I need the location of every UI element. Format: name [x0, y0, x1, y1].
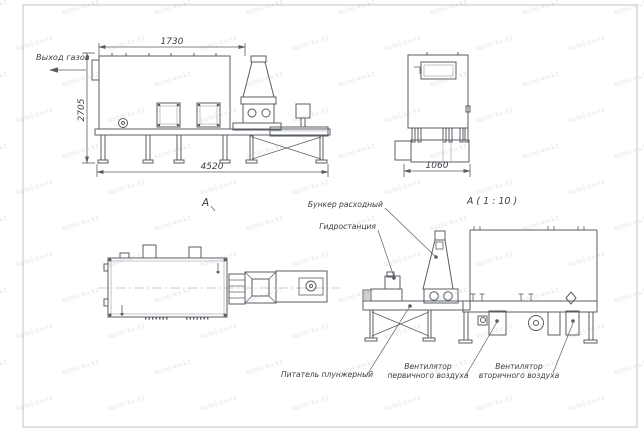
gas-flow-arrow-icon — [49, 67, 58, 72]
fan-primary-label-1: Вентилятор — [404, 362, 452, 371]
feeder-assembly — [363, 272, 470, 341]
fan-secondary-unit — [529, 311, 580, 335]
fan-primary-unit — [478, 311, 506, 335]
callout-fan-secondary: Вентилятор вторичного воздуха — [479, 323, 573, 380]
dim-2705: 2705 — [77, 98, 87, 121]
chamber-section — [459, 226, 597, 343]
callout-hydrostation: Гидростанция — [319, 222, 395, 279]
view-end-elevation: 1060 — [395, 52, 470, 177]
bunker-tower-side — [233, 56, 281, 130]
conveyor-and-support — [246, 104, 328, 163]
bunker-tower-detail — [423, 231, 458, 303]
boiler-base-frame — [95, 129, 330, 163]
sheet-frame — [23, 5, 637, 427]
view-side-elevation: Выход газов 1730 2705 4520 — [36, 37, 330, 211]
anchor-mark-icon — [566, 292, 576, 304]
boiler-body-side — [92, 53, 230, 129]
gas-outlet-label: Выход газов — [36, 52, 90, 62]
section-marker-a: А — [201, 197, 215, 211]
dimension-top-width: 1730 — [99, 37, 245, 56]
drawing-sheet: Выход газов 1730 2705 4520 — [0, 0, 644, 430]
fan-primary-label-2: первичного воздуха — [387, 371, 468, 380]
dim-1730: 1730 — [161, 37, 184, 47]
hydro-label: Гидростанция — [319, 222, 376, 231]
section-a-label: А — [201, 197, 209, 209]
fan-secondary-label-1: Вентилятор — [495, 362, 543, 371]
technical-drawing: Выход газов 1730 2705 4520 — [0, 0, 644, 430]
dimension-overall-length: 4520 — [97, 162, 328, 177]
bunker-label: Бункер расходный — [308, 200, 383, 209]
dim-1060: 1060 — [426, 161, 449, 171]
callout-feeder: Питатель плунжерный — [281, 305, 411, 379]
fan-secondary-label-2: вторичного воздуха — [479, 371, 560, 380]
detail-title: А ( 1 : 10 ) — [466, 196, 517, 207]
dimension-end-width: 1060 — [404, 161, 470, 177]
gas-outlet-callout: Выход газов — [36, 52, 90, 73]
feeder-label: Питатель плунжерный — [281, 370, 373, 379]
view-plan — [98, 245, 340, 318]
